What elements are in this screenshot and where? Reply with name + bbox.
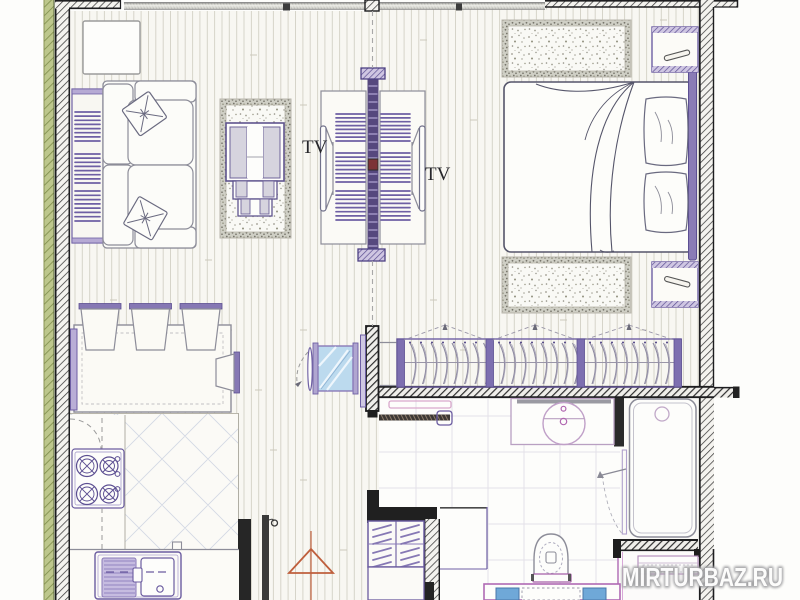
- svg-text:TV: TV: [425, 164, 451, 185]
- svg-text:MIRTURBAZ.RU: MIRTURBAZ.RU: [622, 562, 783, 592]
- svg-text:TV: TV: [302, 137, 328, 158]
